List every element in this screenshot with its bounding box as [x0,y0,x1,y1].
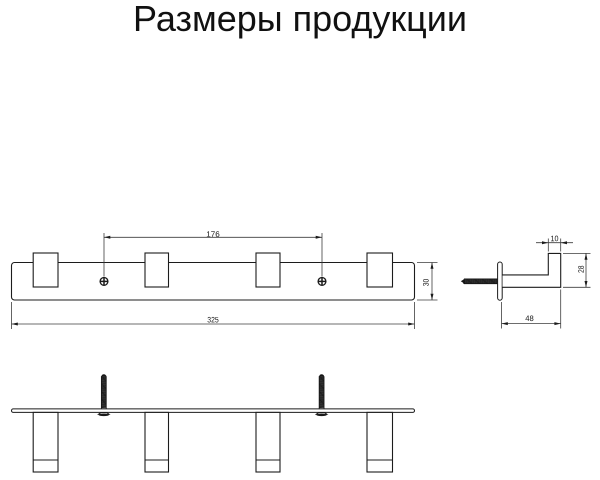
svg-text:Размеры продукции: Размеры продукции [133,0,467,39]
